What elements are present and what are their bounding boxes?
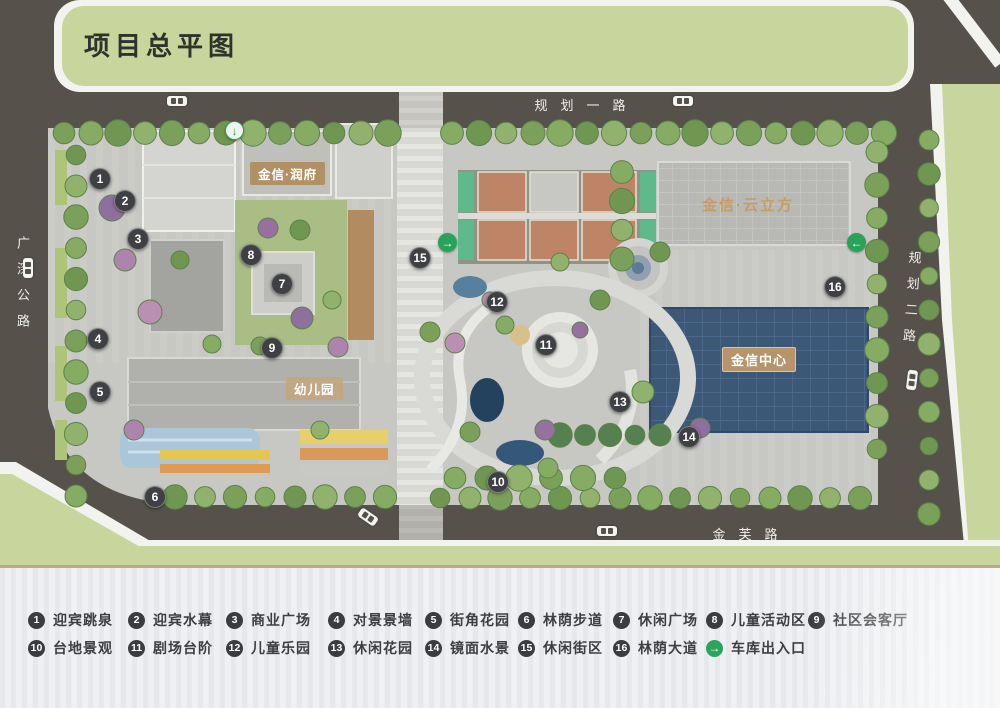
car-icon <box>597 526 617 536</box>
legend-item: 1迎宾跳泉 <box>28 608 113 632</box>
legend-item: 5街角花园 <box>425 608 510 632</box>
building-label-kindergarten: 幼儿园 <box>286 377 343 400</box>
legend-label: 街角花园 <box>450 610 510 630</box>
legend-label: 社区会客厅 <box>833 610 908 630</box>
legend-item: 12儿童乐园 <box>226 636 311 660</box>
water-feature <box>470 378 504 422</box>
legend-label: 林荫大道 <box>638 638 698 658</box>
legend-item: 2迎宾水幕 <box>128 608 213 632</box>
legend-number-badge: 1 <box>28 612 45 629</box>
legend-label: 迎宾水幕 <box>153 610 213 630</box>
legend-number-badge: 8 <box>706 612 723 629</box>
garage-entrance-arrow-icon: ← <box>847 233 866 252</box>
legend-label: 镜面水景 <box>450 638 510 658</box>
road-label-top: 规划一路 <box>500 95 660 114</box>
map-marker-2: 2 <box>114 190 136 212</box>
legend-item: 7休闲广场 <box>613 608 698 632</box>
garage-arrow-icon: → <box>706 640 723 657</box>
legend-number-badge: 12 <box>226 640 243 657</box>
building-label-jinxin-center: 金信中心 <box>722 347 796 372</box>
legend-number-badge: 7 <box>613 612 630 629</box>
car-icon <box>167 96 187 106</box>
map-marker-12: 12 <box>486 291 508 313</box>
legend-number-badge: 15 <box>518 640 535 657</box>
legend-item: 15休闲街区 <box>518 636 603 660</box>
master-plan-map: 项目总平图 规划一路 广深公路 规划二路 金芙路 金信·润府 金信·云立方 金信… <box>0 0 1000 565</box>
legend-item: →车库出入口 <box>706 636 806 660</box>
building-label-yunlifang: 金信·云立方 <box>702 194 794 215</box>
legend-label: 林荫步道 <box>543 610 603 630</box>
crosswalk-top <box>399 88 443 128</box>
water-feature <box>496 440 544 466</box>
legend-label: 休闲广场 <box>638 610 698 630</box>
legend-row-1: 1迎宾跳泉2迎宾水幕3商业广场4对景景墙5街角花园6林荫步道7休闲广场8儿童活动… <box>0 608 1000 632</box>
map-marker-9: 9 <box>261 337 283 359</box>
legend-number-badge: 6 <box>518 612 535 629</box>
garage-entrance-arrow-icon: → <box>438 233 457 252</box>
garage-entrance-arrow-icon: ↓ <box>225 121 244 140</box>
legend-number-badge: 13 <box>328 640 345 657</box>
legend-item: 14镜面水景 <box>425 636 510 660</box>
map-marker-7: 7 <box>271 273 293 295</box>
legend-item: 9社区会客厅 <box>808 608 908 632</box>
green-bottom-strip <box>0 546 1000 565</box>
legend: 1迎宾跳泉2迎宾水幕3商业广场4对景景墙5街角花园6林荫步道7休闲广场8儿童活动… <box>0 565 1000 708</box>
legend-item: 8儿童活动区 <box>706 608 806 632</box>
legend-number-badge: 11 <box>128 640 145 657</box>
building-kindergarten-block <box>120 358 388 476</box>
legend-label: 剧场台阶 <box>153 638 213 658</box>
legend-label: 对景景墙 <box>353 610 413 630</box>
legend-number-badge: 2 <box>128 612 145 629</box>
legend-number-badge: 9 <box>808 612 825 629</box>
legend-item: 11剧场台阶 <box>128 636 213 660</box>
legend-number-badge: 4 <box>328 612 345 629</box>
pedestrian-street <box>397 128 443 505</box>
map-marker-10: 10 <box>487 471 509 493</box>
legend-label: 儿童活动区 <box>731 610 806 630</box>
map-marker-13: 13 <box>609 391 631 413</box>
page-title: 项目总平图 <box>84 26 239 63</box>
legend-item: 4对景景墙 <box>328 608 413 632</box>
legend-label: 台地景观 <box>53 638 113 658</box>
map-marker-1: 1 <box>89 168 111 190</box>
legend-item: 3商业广场 <box>226 608 311 632</box>
legend-number-badge: 10 <box>28 640 45 657</box>
car-icon <box>23 258 33 278</box>
legend-label: 休闲街区 <box>543 638 603 658</box>
road-label-left: 广深公路 <box>13 236 32 340</box>
car-icon <box>673 96 693 106</box>
legend-item: 16林荫大道 <box>613 636 698 660</box>
legend-label: 车库出入口 <box>731 638 806 658</box>
legend-number-badge: 3 <box>226 612 243 629</box>
legend-row-2: 10台地景观11剧场台阶12儿童乐园13休闲花园14镜面水景15休闲街区16林荫… <box>0 636 1000 660</box>
legend-item: 13休闲花园 <box>328 636 413 660</box>
legend-label: 迎宾跳泉 <box>53 610 113 630</box>
water-feature <box>453 276 487 298</box>
map-marker-16: 16 <box>824 276 846 298</box>
road-label-bottom: 金芙路 <box>685 524 805 543</box>
site-plan-poster: 项目总平图 规划一路 广深公路 规划二路 金芙路 金信·润府 金信·云立方 金信… <box>0 0 1000 708</box>
legend-number-badge: 14 <box>425 640 442 657</box>
legend-number-badge: 5 <box>425 612 442 629</box>
legend-item: 6林荫步道 <box>518 608 603 632</box>
legend-item: 10台地景观 <box>28 636 113 660</box>
map-marker-15: 15 <box>409 247 431 269</box>
map-marker-5: 5 <box>89 381 111 403</box>
legend-label: 休闲花园 <box>353 638 413 658</box>
map-marker-14: 14 <box>678 426 700 448</box>
map-marker-11: 11 <box>535 334 557 356</box>
map-marker-4: 4 <box>87 328 109 350</box>
map-marker-3: 3 <box>127 228 149 250</box>
legend-number-badge: 16 <box>613 640 630 657</box>
legend-label: 儿童乐园 <box>251 638 311 658</box>
map-marker-6: 6 <box>144 486 166 508</box>
legend-label: 商业广场 <box>251 610 311 630</box>
building-label-runfu: 金信·润府 <box>250 162 325 185</box>
map-marker-8: 8 <box>240 244 262 266</box>
